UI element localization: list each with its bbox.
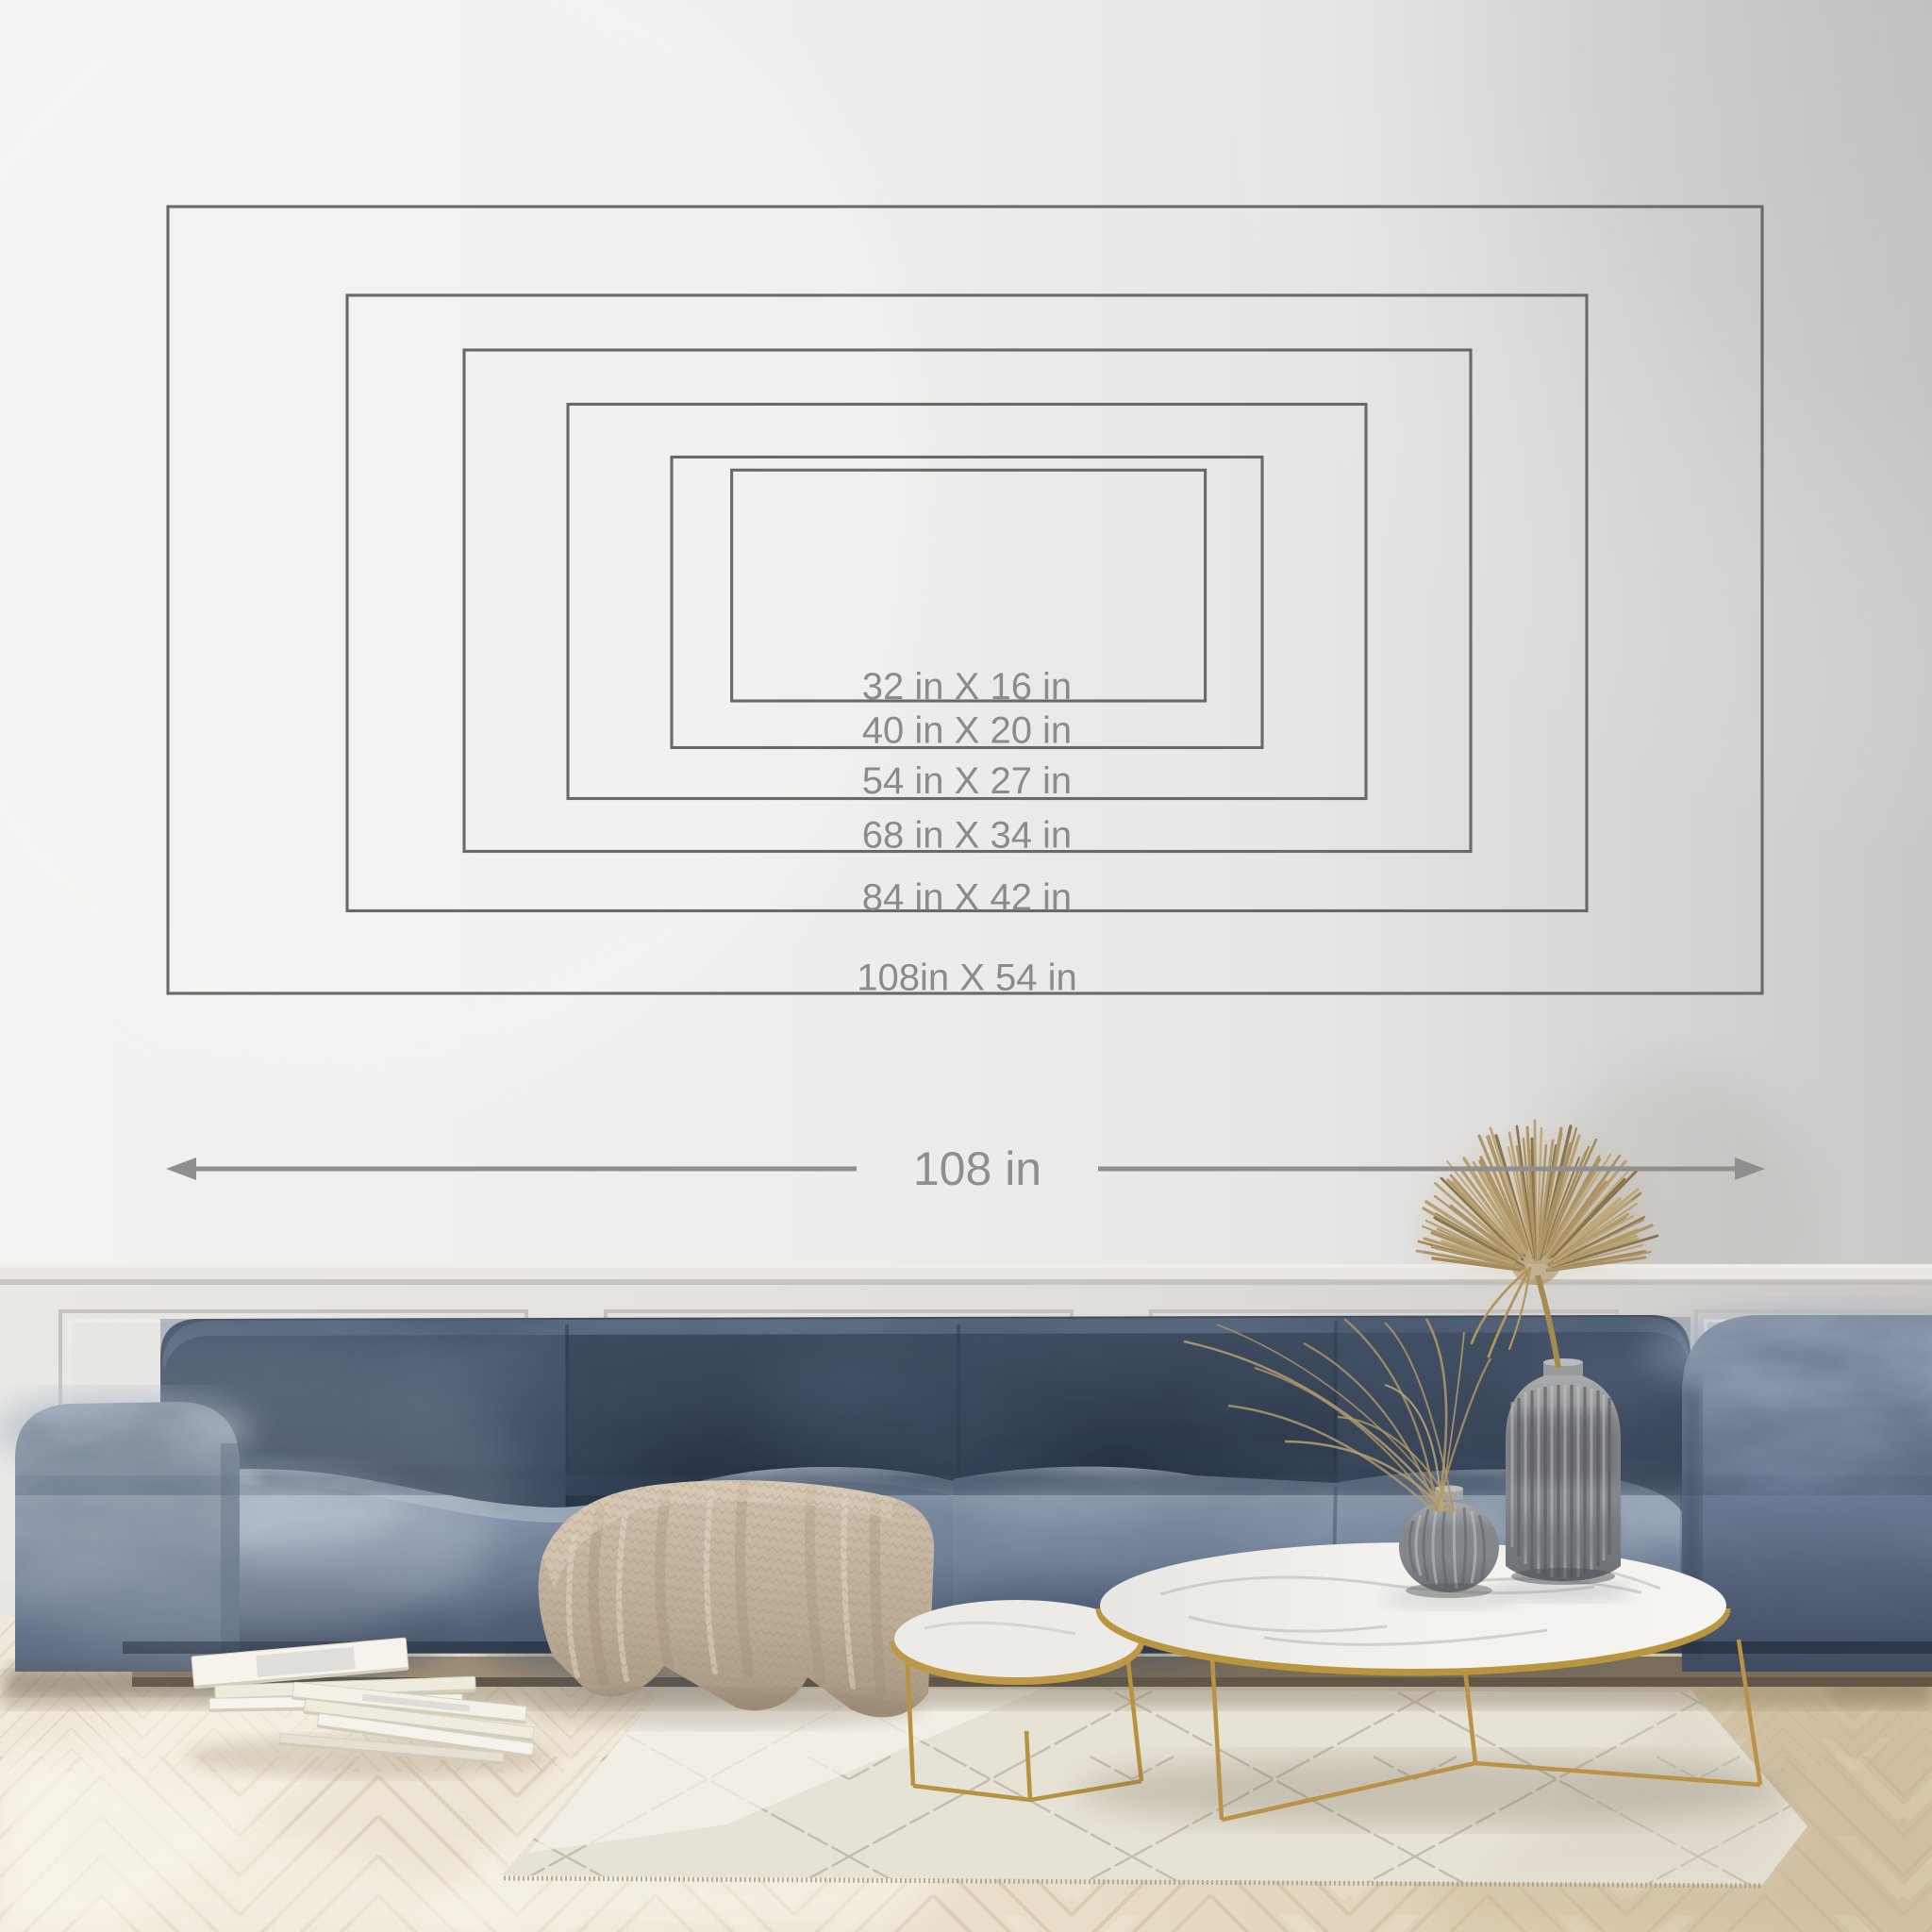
svg-text:54 in X 27 in: 54 in X 27 in xyxy=(862,760,1072,802)
svg-text:108in X 54 in: 108in X 54 in xyxy=(857,957,1077,998)
svg-text:32 in X 16 in: 32 in X 16 in xyxy=(862,666,1072,708)
svg-text:108 in: 108 in xyxy=(913,1142,1041,1195)
svg-text:84 in X 42 in: 84 in X 42 in xyxy=(862,877,1072,919)
svg-text:68 in X 34 in: 68 in X 34 in xyxy=(862,814,1072,856)
svg-text:40 in X 20 in: 40 in X 20 in xyxy=(862,710,1072,752)
